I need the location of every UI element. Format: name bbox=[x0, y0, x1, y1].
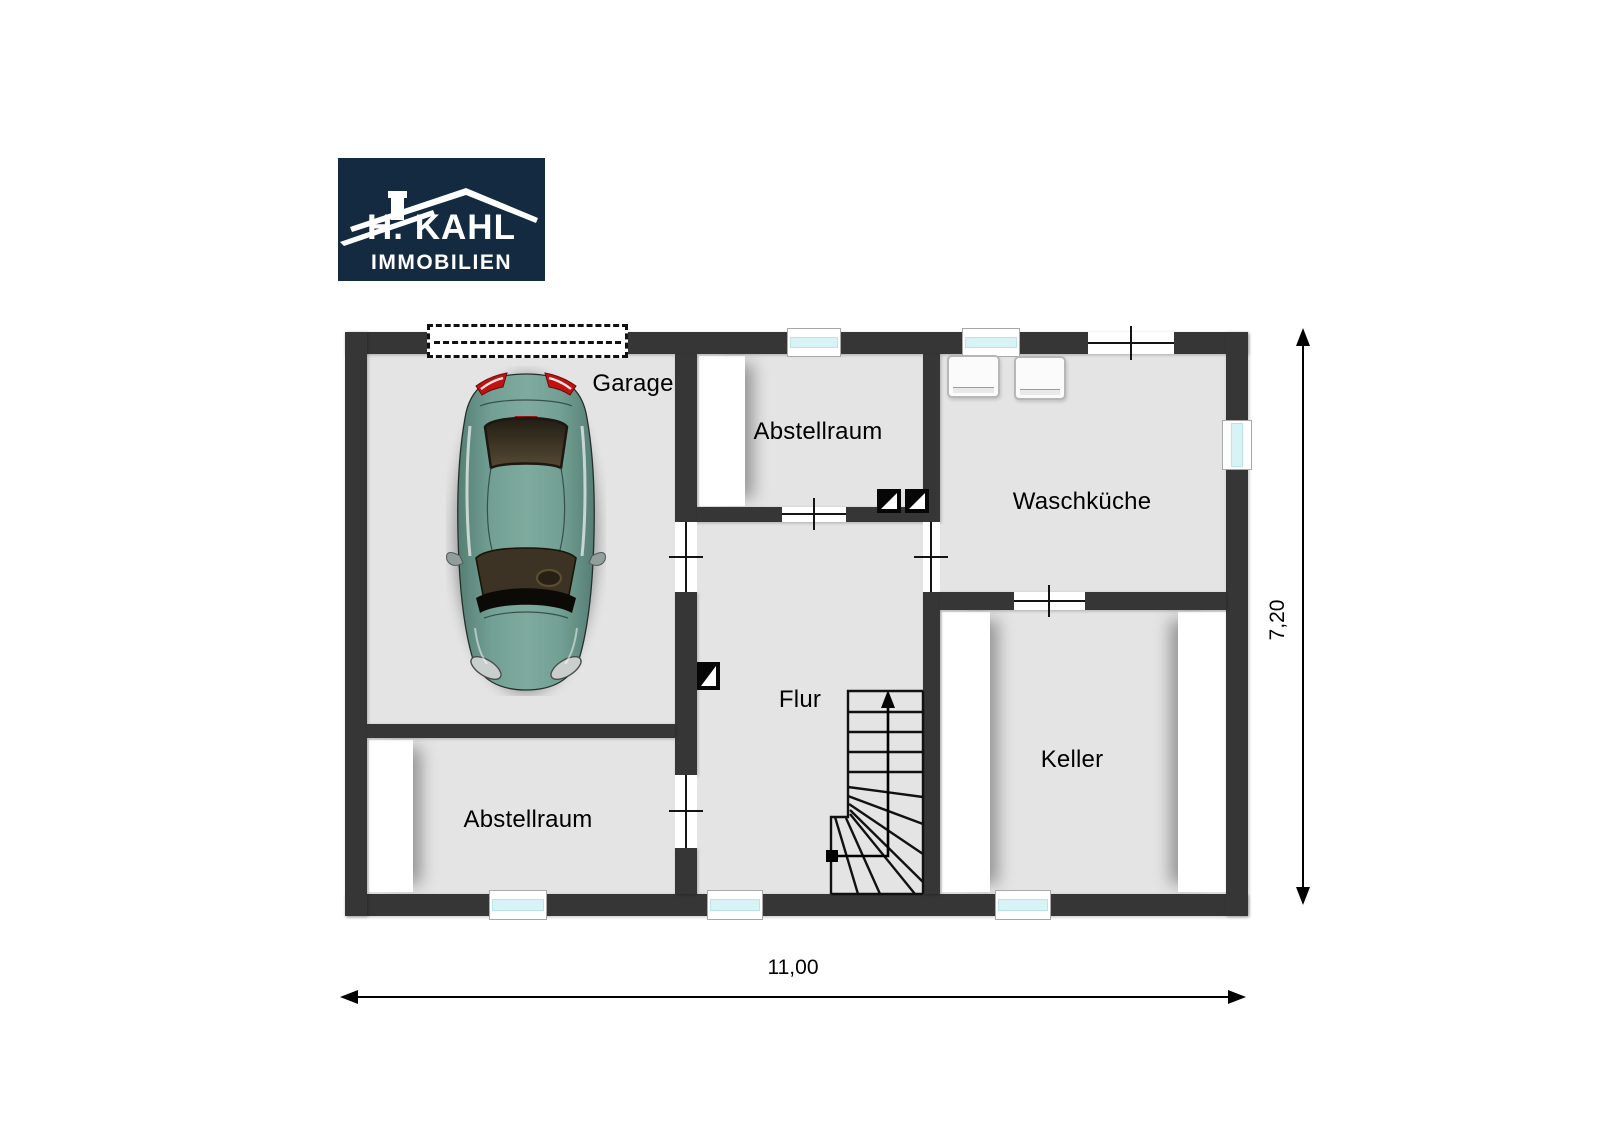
white-band-keller-right bbox=[1178, 612, 1226, 892]
room-label-waschkueche: Waschküche bbox=[1013, 488, 1152, 516]
company-logo: H. KAHL IMMOBILIEN bbox=[338, 158, 545, 281]
garage-door-midline bbox=[434, 341, 621, 344]
door-tick bbox=[813, 498, 815, 530]
window-glass bbox=[1231, 423, 1243, 467]
dimension-height: 7,20 bbox=[1262, 318, 1342, 918]
door-tick bbox=[669, 556, 703, 558]
window-glass bbox=[710, 899, 760, 911]
room-label-flur: Flur bbox=[779, 686, 821, 714]
arrowhead-right bbox=[1228, 990, 1246, 1004]
washing-machine-icon bbox=[1014, 356, 1066, 400]
wall-exterior-bottom bbox=[345, 894, 1248, 916]
stairs-icon bbox=[820, 684, 928, 896]
dimension-height-label: 7,20 bbox=[1266, 600, 1289, 641]
arrowhead-left bbox=[340, 990, 358, 1004]
window-glass bbox=[790, 337, 838, 348]
door-tick bbox=[1130, 326, 1132, 360]
arrowhead-down bbox=[1296, 887, 1310, 905]
stairs-up-arrow bbox=[881, 690, 895, 708]
white-band-keller-left bbox=[942, 612, 990, 892]
chimney-icon bbox=[697, 662, 720, 690]
white-band-abstellraum-bottom bbox=[369, 740, 413, 892]
room-label-garage: Garage bbox=[592, 370, 673, 398]
room-label-abstellraum-top: Abstellraum bbox=[754, 418, 883, 446]
wall-garage-right-lower bbox=[675, 848, 697, 894]
chimney-triangle bbox=[881, 493, 897, 509]
car-top-view bbox=[446, 366, 606, 696]
arrowhead-up bbox=[1296, 328, 1310, 346]
window-glass bbox=[492, 899, 544, 911]
window-glass bbox=[998, 899, 1048, 911]
door-tick bbox=[914, 556, 948, 558]
chimney-icon bbox=[877, 489, 901, 513]
logo-brand-subtitle: IMMOBILIEN bbox=[338, 251, 545, 275]
chimney-icon bbox=[905, 489, 929, 513]
door-tick bbox=[1048, 585, 1050, 617]
wall-garage-bottom bbox=[367, 724, 675, 738]
chimney-triangle bbox=[909, 493, 925, 509]
washing-machine-icon bbox=[947, 355, 1000, 398]
door-tick bbox=[669, 810, 703, 812]
room-label-abstellraum-bottom: Abstellraum bbox=[464, 806, 593, 834]
room-label-keller: Keller bbox=[1041, 746, 1104, 774]
logo-brand-name: H. KAHL bbox=[338, 208, 545, 248]
floor-plan-page: H. KAHL IMMOBILIEN bbox=[0, 0, 1600, 1132]
dimension-width-label: 11,00 bbox=[768, 956, 819, 979]
wall-exterior-left bbox=[345, 332, 367, 916]
garage-door bbox=[427, 324, 628, 358]
white-band-abstellraum-top bbox=[699, 356, 745, 506]
appliance-panel bbox=[953, 387, 994, 393]
stairs-start-marker bbox=[826, 850, 838, 862]
dimension-width: 11,00 bbox=[328, 944, 1258, 1008]
wall-garage-right-upper bbox=[675, 354, 697, 522]
wall-garage-right-middle bbox=[675, 592, 697, 775]
window-glass bbox=[965, 337, 1017, 348]
appliance-panel bbox=[1020, 389, 1060, 395]
chimney-triangle bbox=[701, 666, 716, 686]
